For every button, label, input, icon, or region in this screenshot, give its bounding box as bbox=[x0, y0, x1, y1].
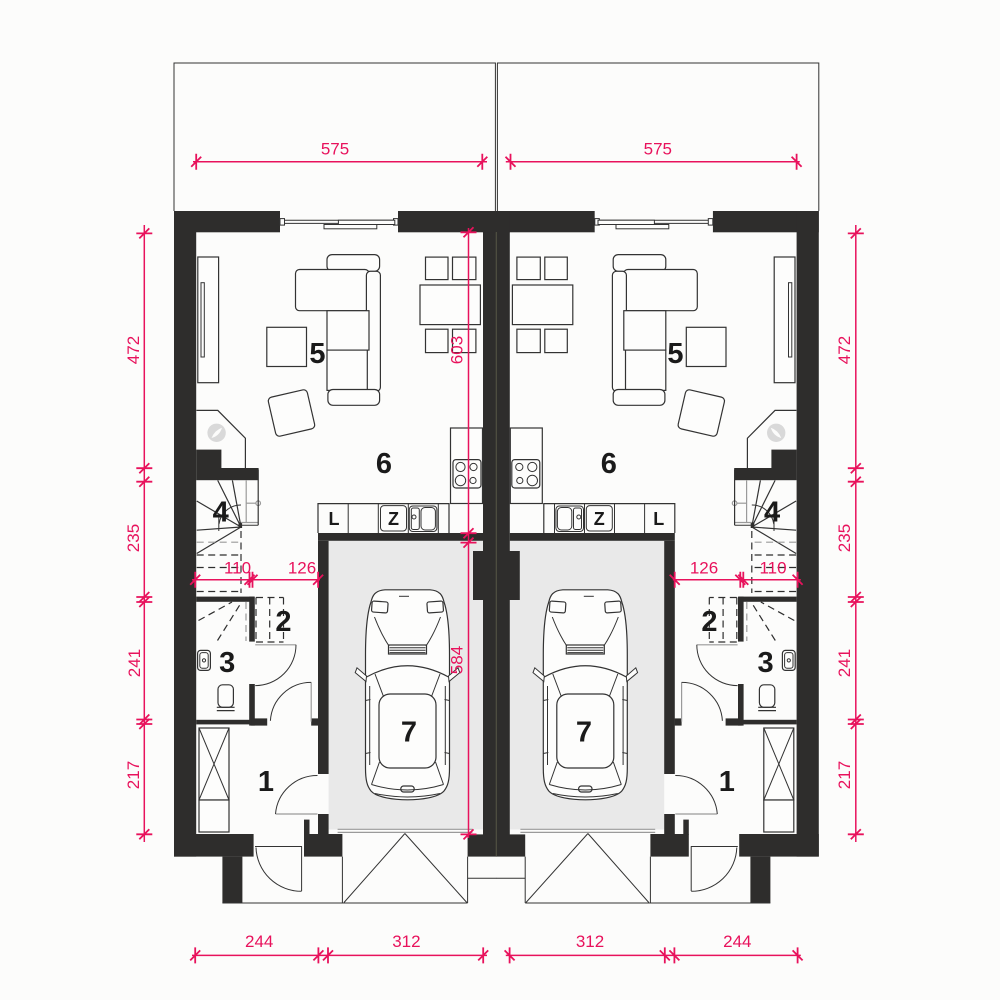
svg-text:235: 235 bbox=[124, 524, 143, 552]
svg-text:584: 584 bbox=[447, 646, 466, 674]
svg-text:217: 217 bbox=[124, 761, 143, 789]
svg-text:217: 217 bbox=[835, 761, 854, 789]
svg-text:2: 2 bbox=[275, 606, 291, 638]
svg-text:241: 241 bbox=[125, 649, 144, 677]
svg-text:4: 4 bbox=[213, 497, 229, 529]
svg-text:126: 126 bbox=[690, 558, 718, 577]
svg-text:235: 235 bbox=[835, 524, 854, 552]
svg-text:3: 3 bbox=[219, 647, 235, 679]
svg-text:110: 110 bbox=[224, 558, 251, 577]
svg-text:472: 472 bbox=[124, 336, 143, 364]
svg-text:575: 575 bbox=[644, 140, 672, 159]
svg-text:5: 5 bbox=[309, 338, 325, 370]
svg-text:6: 6 bbox=[376, 448, 392, 480]
svg-text:6: 6 bbox=[601, 448, 617, 480]
svg-text:110: 110 bbox=[759, 558, 786, 577]
svg-text:7: 7 bbox=[576, 717, 592, 749]
svg-text:1: 1 bbox=[719, 766, 735, 798]
svg-text:244: 244 bbox=[245, 932, 273, 951]
svg-text:312: 312 bbox=[576, 932, 604, 951]
svg-text:603: 603 bbox=[447, 336, 466, 364]
svg-text:472: 472 bbox=[835, 336, 854, 364]
svg-text:244: 244 bbox=[723, 932, 751, 951]
svg-text:5: 5 bbox=[667, 338, 683, 370]
svg-text:2: 2 bbox=[701, 606, 717, 638]
svg-text:1: 1 bbox=[258, 766, 274, 798]
svg-text:4: 4 bbox=[764, 497, 780, 529]
svg-text:3: 3 bbox=[758, 647, 774, 679]
svg-text:126: 126 bbox=[288, 558, 316, 577]
svg-text:L: L bbox=[653, 509, 664, 529]
svg-text:241: 241 bbox=[835, 649, 854, 677]
svg-text:312: 312 bbox=[392, 932, 420, 951]
svg-text:Z: Z bbox=[594, 509, 605, 529]
svg-text:7: 7 bbox=[401, 717, 417, 749]
svg-text:L: L bbox=[329, 509, 340, 529]
svg-text:575: 575 bbox=[321, 140, 349, 159]
svg-text:Z: Z bbox=[388, 509, 399, 529]
